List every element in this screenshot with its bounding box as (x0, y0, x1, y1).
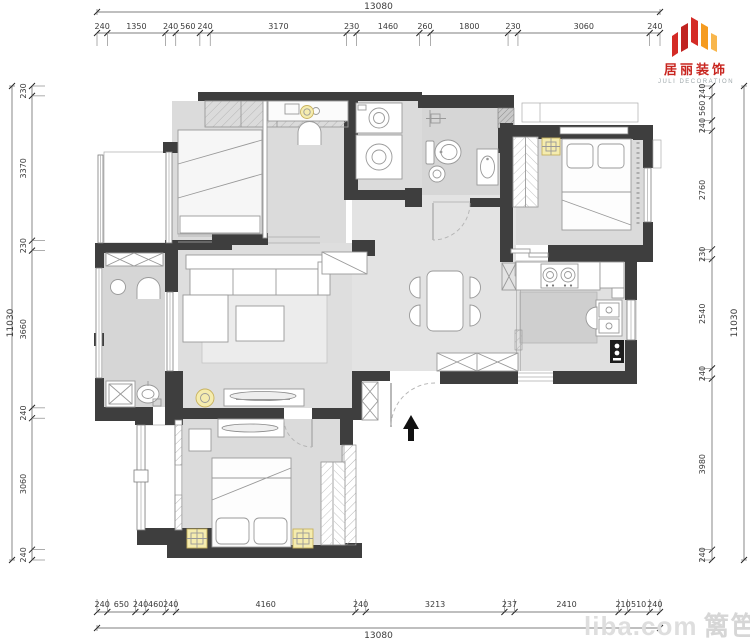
dim-label: 240 (698, 84, 707, 99)
dim-label: 230 (19, 238, 28, 253)
watermark: liba.com篱笆网 (584, 606, 750, 643)
bed-topright (562, 139, 631, 230)
stove (541, 264, 578, 288)
lamp-square-topright (542, 138, 560, 155)
dim-label: 1350 (126, 22, 146, 31)
kitchen-island (520, 292, 597, 343)
dim-label: 230 (19, 83, 28, 98)
cabinet-row-left (106, 253, 163, 266)
logo-brand-cn: 居丽装饰 (648, 63, 744, 77)
washer-dryer (356, 103, 402, 179)
chair (298, 122, 321, 145)
lamp-round-living (196, 389, 214, 407)
dim-label: 237 (502, 600, 517, 609)
dim-label: 4160 (256, 600, 276, 609)
floor-balcony-bottomleft (145, 425, 176, 530)
dim-label: 650 (114, 600, 129, 609)
kitchen-sink (596, 300, 622, 336)
wardrobe-bottomleft (321, 462, 345, 545)
dim-label: 3660 (19, 319, 28, 339)
floorplan-page: 2401350240560240317023014602601800230306… (0, 0, 750, 643)
room-divider (263, 101, 267, 238)
bed-bottomleft (212, 458, 291, 547)
dim-label: 560 (698, 101, 707, 116)
side-cabinet (189, 429, 211, 451)
dim-label: 240 (698, 118, 707, 133)
dim-label: 13080 (364, 2, 393, 12)
logo-mark (667, 12, 725, 58)
dim-label: 240 (698, 547, 707, 562)
tv-console-living (224, 389, 304, 406)
shoe-cabinet (322, 252, 367, 274)
dim-label: 11030 (6, 308, 16, 337)
dim-label: 240 (163, 22, 178, 31)
dim-label: 240 (133, 600, 148, 609)
dim-label: 1800 (459, 22, 479, 31)
entry-shaft (362, 382, 378, 420)
coffee-table (236, 306, 284, 341)
dim-label: 240 (95, 600, 110, 609)
bed-topleft (178, 130, 262, 234)
watermark-latin: liba.com (584, 611, 697, 641)
dim-label: 240 (698, 366, 707, 381)
shower-tray (106, 381, 135, 407)
dim-chain-bottom: 2406502404602404160240321323724102105102… (94, 599, 663, 641)
dim-label: 240 (163, 600, 178, 609)
dim-label: 240 (197, 22, 212, 31)
wardrobe-topright (513, 137, 538, 207)
dim-label: 3060 (19, 474, 28, 494)
dim-label: 560 (180, 22, 195, 31)
basin (111, 280, 126, 295)
dim-label: 240 (353, 600, 368, 609)
logo: 居丽装饰 JULI DECORATION (648, 12, 744, 85)
dim-label: 240 (19, 405, 28, 420)
flower-box (522, 103, 638, 122)
lamp-round-bedroom2 (301, 106, 314, 119)
dim-label: 2760 (698, 180, 707, 200)
vanity (477, 149, 498, 185)
dim-label: 13080 (364, 631, 393, 641)
dim-label: 11030 (730, 308, 740, 337)
dim-label: 260 (417, 22, 432, 31)
dim-label: 460 (148, 600, 163, 609)
dim-chain-top: 2401350240560240317023014602601800230306… (94, 2, 663, 46)
entrance-arrow (403, 415, 419, 441)
dim-label: 3370 (19, 158, 28, 178)
dim-label: 230 (344, 22, 359, 31)
dim-label: 1460 (378, 22, 398, 31)
floor-balcony-topleft (104, 152, 168, 243)
chair-left-bath (137, 277, 160, 299)
dim-label: 240 (19, 547, 28, 562)
tv-console-bedroom (218, 419, 284, 437)
lamp-square-bl-2 (293, 529, 313, 548)
dim-label: 2540 (698, 304, 707, 324)
dim-chain-left: 23033702303660240306024011030 (6, 83, 45, 563)
dim-label: 240 (95, 22, 110, 31)
dim-chain-right: 24056024027602302540240398024011030 (698, 83, 747, 563)
oven (610, 340, 624, 363)
dim-label: 3170 (268, 22, 288, 31)
logo-brand-en: JULI DECORATION (648, 79, 744, 85)
bathroom-sink (429, 166, 445, 182)
watermark-cn: 篱笆网 (703, 611, 750, 641)
dim-label: 3060 (574, 22, 594, 31)
entry-cabinet (437, 353, 518, 371)
dim-label: 230 (505, 22, 520, 31)
dim-label: 3980 (698, 454, 707, 474)
dim-label: 3213 (425, 600, 445, 609)
lamp-square-bl-1 (187, 529, 207, 548)
dim-label: 2410 (556, 600, 576, 609)
dim-label: 230 (698, 247, 707, 262)
floorplan-drawing: 2401350240560240317023014602601800230306… (0, 0, 750, 643)
toilet (426, 140, 461, 164)
